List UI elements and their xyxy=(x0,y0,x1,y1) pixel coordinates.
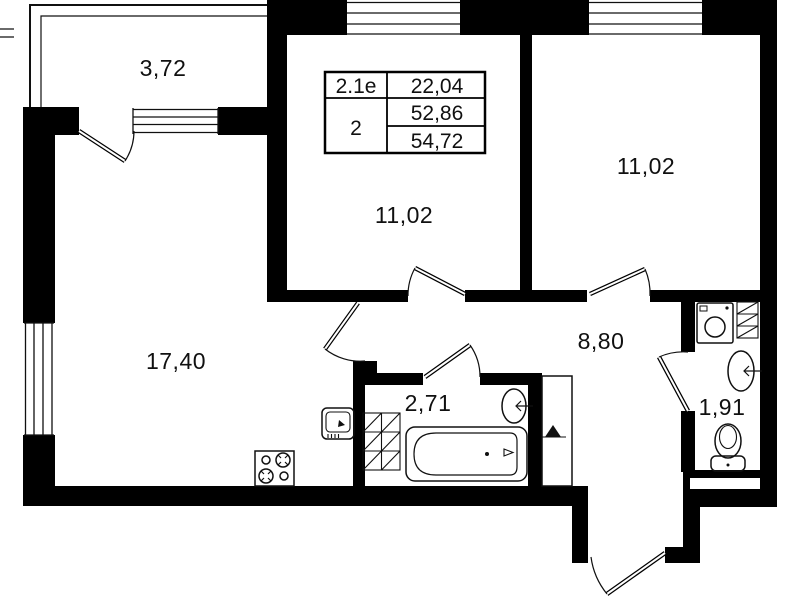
room-label-room-top-right: 11,02 xyxy=(617,153,675,179)
window-icon xyxy=(24,323,54,435)
door-swing-icon xyxy=(590,269,650,296)
duct-marker-icon xyxy=(545,425,561,437)
area-table-rooms-count: 2 xyxy=(350,117,362,140)
door-swing-icon xyxy=(79,131,134,161)
door-swing-icon xyxy=(591,553,665,594)
area-table-living-area: 22,04 xyxy=(411,75,464,98)
window-icon xyxy=(589,3,702,35)
room-label-hallway: 8,80 xyxy=(578,328,625,354)
area-table: 2.1е 22,04 2 52,86 54,72 xyxy=(325,72,485,153)
room-label-balcony: 3,72 xyxy=(140,55,187,81)
room-label-room-top-center: 11,02 xyxy=(375,202,433,228)
balcony-outline xyxy=(0,5,267,107)
neighbor-wall-hint xyxy=(0,29,14,37)
window-icon xyxy=(133,108,218,134)
door-swing-icon xyxy=(659,352,688,411)
toilet-icon xyxy=(711,424,745,471)
wall-niche xyxy=(690,478,760,489)
washing-machine-icon xyxy=(697,303,733,343)
wash-basin-icon xyxy=(728,351,762,391)
door-swing-icon xyxy=(425,345,480,377)
floor-plan-drawing: 2.1е 22,04 2 52,86 54,72 3,72 11,02 11,0… xyxy=(0,0,799,600)
duct-shaft xyxy=(542,376,572,486)
room-label-wc: 1,91 xyxy=(699,394,746,420)
vent-hatch-icon xyxy=(363,413,400,470)
room-label-living-room: 17,40 xyxy=(146,348,206,374)
area-table-total-area: 54,72 xyxy=(411,130,464,153)
bathtub-icon xyxy=(406,427,527,481)
stove-icon xyxy=(255,451,294,486)
door-swing-icon xyxy=(325,303,365,361)
window-icon xyxy=(347,3,460,35)
room-label-bathroom: 2,71 xyxy=(405,390,452,416)
kitchen-sink-icon xyxy=(322,408,354,439)
area-table-apartment-area: 52,86 xyxy=(411,102,464,125)
area-table-unit-type: 2.1е xyxy=(336,75,377,98)
floor-plan: 2.1е 22,04 2 52,86 54,72 3,72 11,02 11,0… xyxy=(0,0,799,600)
door-swing-icon xyxy=(408,268,465,296)
vent-hatch-icon xyxy=(737,302,758,338)
